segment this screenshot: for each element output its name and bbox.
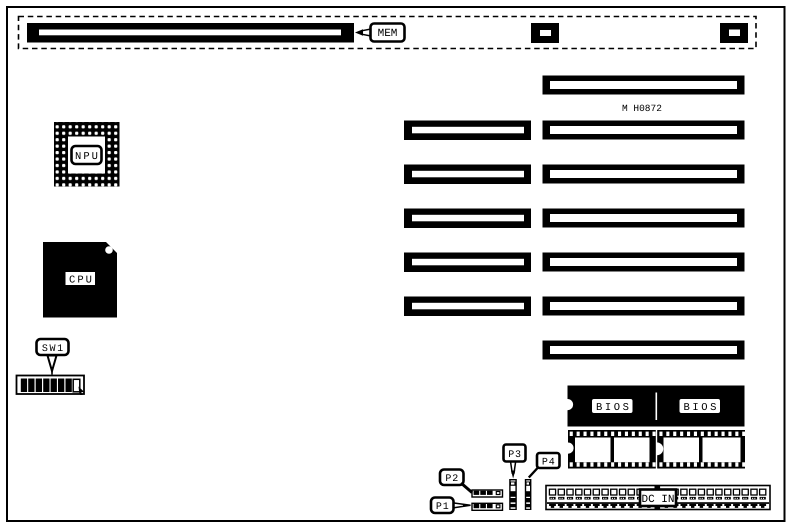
svg-text:P1: P1: [436, 502, 450, 513]
svg-text:P4: P4: [542, 457, 556, 468]
svg-text:P3: P3: [508, 450, 522, 461]
svg-text:DC IN: DC IN: [641, 494, 674, 506]
svg-text:SW1: SW1: [42, 344, 65, 355]
svg-text:CPU: CPU: [69, 274, 94, 286]
svg-text:BIOS: BIOS: [683, 402, 719, 414]
svg-text:BIOS: BIOS: [596, 402, 632, 414]
svg-text:P2: P2: [445, 474, 459, 485]
svg-text:M H0872: M H0872: [622, 103, 662, 114]
svg-text:MEM: MEM: [378, 28, 398, 40]
svg-text:NPU: NPU: [75, 151, 100, 163]
